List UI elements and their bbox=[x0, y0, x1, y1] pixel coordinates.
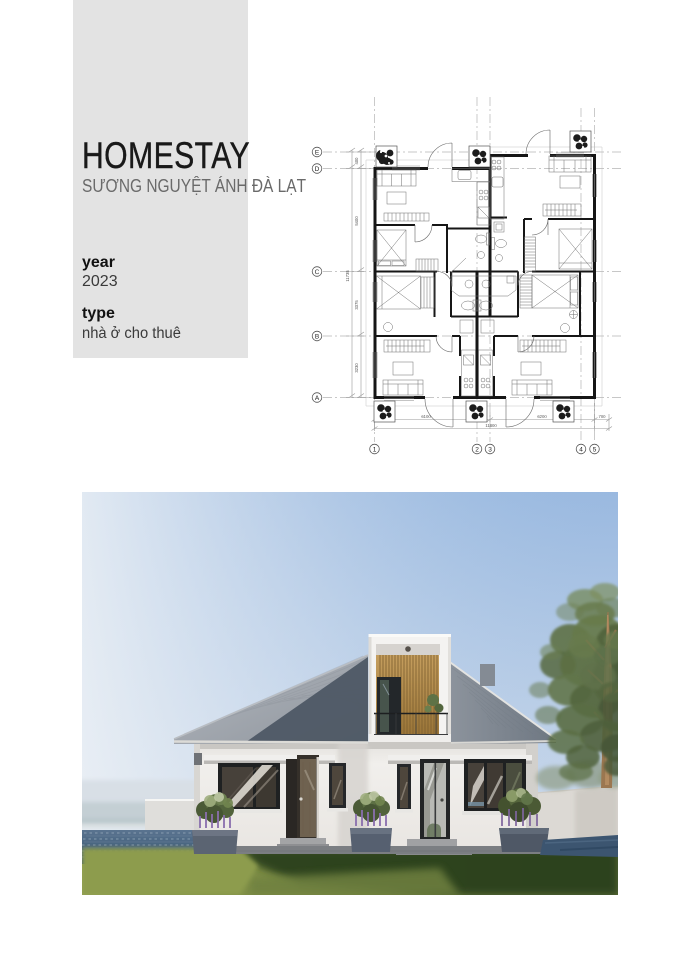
svg-text:4: 4 bbox=[579, 447, 583, 454]
svg-text:400: 400 bbox=[354, 157, 359, 165]
svg-text:B: B bbox=[315, 334, 319, 341]
svg-text:A: A bbox=[315, 395, 320, 402]
svg-text:1: 1 bbox=[373, 447, 377, 454]
svg-text:6200: 6200 bbox=[537, 414, 547, 419]
svg-text:C: C bbox=[315, 269, 320, 276]
svg-text:700: 700 bbox=[599, 414, 607, 419]
svg-text:E: E bbox=[315, 150, 320, 157]
svg-text:2: 2 bbox=[475, 447, 479, 454]
svg-text:5: 5 bbox=[593, 447, 597, 454]
svg-text:5400: 5400 bbox=[354, 216, 359, 226]
svg-text:11800: 11800 bbox=[485, 423, 497, 428]
svg-text:D: D bbox=[315, 166, 320, 173]
svg-text:3230: 3230 bbox=[354, 363, 359, 373]
svg-text:11735: 11735 bbox=[345, 270, 350, 282]
svg-text:3375: 3375 bbox=[354, 300, 359, 310]
svg-text:3: 3 bbox=[488, 447, 492, 454]
